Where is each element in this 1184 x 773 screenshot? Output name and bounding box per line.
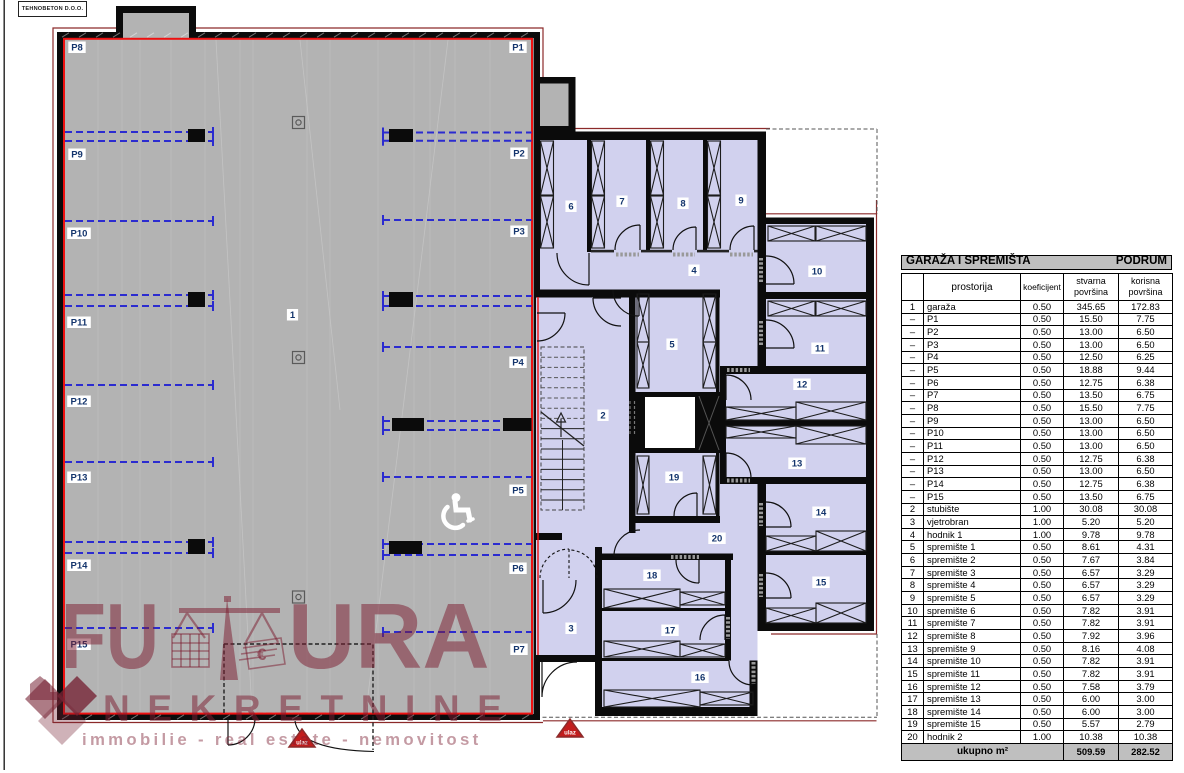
svg-text:9: 9 — [738, 196, 743, 207]
svg-text:6: 6 — [568, 202, 573, 213]
svg-text:10: 10 — [812, 267, 823, 278]
svg-text:11: 11 — [815, 344, 826, 355]
svg-text:P8: P8 — [71, 43, 83, 54]
svg-text:P6: P6 — [512, 564, 524, 575]
svg-text:20: 20 — [712, 534, 723, 545]
svg-text:P3: P3 — [513, 227, 525, 238]
svg-text:€: € — [257, 645, 267, 664]
svg-text:3: 3 — [568, 624, 573, 635]
svg-text:P4: P4 — [512, 358, 524, 369]
svg-text:P1: P1 — [512, 43, 524, 54]
svg-text:P7: P7 — [513, 645, 525, 656]
svg-text:17: 17 — [665, 626, 676, 637]
svg-text:ulaz: ulaz — [564, 731, 576, 737]
svg-text:2: 2 — [600, 411, 605, 422]
svg-text:P5: P5 — [512, 486, 524, 497]
svg-text:P12: P12 — [71, 397, 88, 408]
svg-text:5: 5 — [669, 340, 675, 351]
svg-text:P13: P13 — [71, 473, 88, 484]
svg-text:18: 18 — [647, 571, 658, 582]
svg-text:13: 13 — [792, 459, 803, 470]
svg-text:P10: P10 — [71, 229, 88, 240]
svg-text:P14: P14 — [71, 561, 89, 572]
svg-text:1: 1 — [290, 310, 296, 321]
svg-text:19: 19 — [669, 473, 680, 484]
svg-text:15: 15 — [816, 578, 827, 589]
svg-text:7: 7 — [619, 197, 624, 208]
svg-text:P9: P9 — [71, 150, 83, 161]
svg-text:P2: P2 — [513, 149, 525, 160]
svg-text:14: 14 — [816, 508, 827, 519]
svg-text:4: 4 — [691, 266, 697, 277]
svg-text:16: 16 — [695, 673, 706, 684]
svg-text:P11: P11 — [71, 318, 88, 329]
svg-text:8: 8 — [680, 199, 685, 210]
svg-text:12: 12 — [797, 380, 808, 391]
